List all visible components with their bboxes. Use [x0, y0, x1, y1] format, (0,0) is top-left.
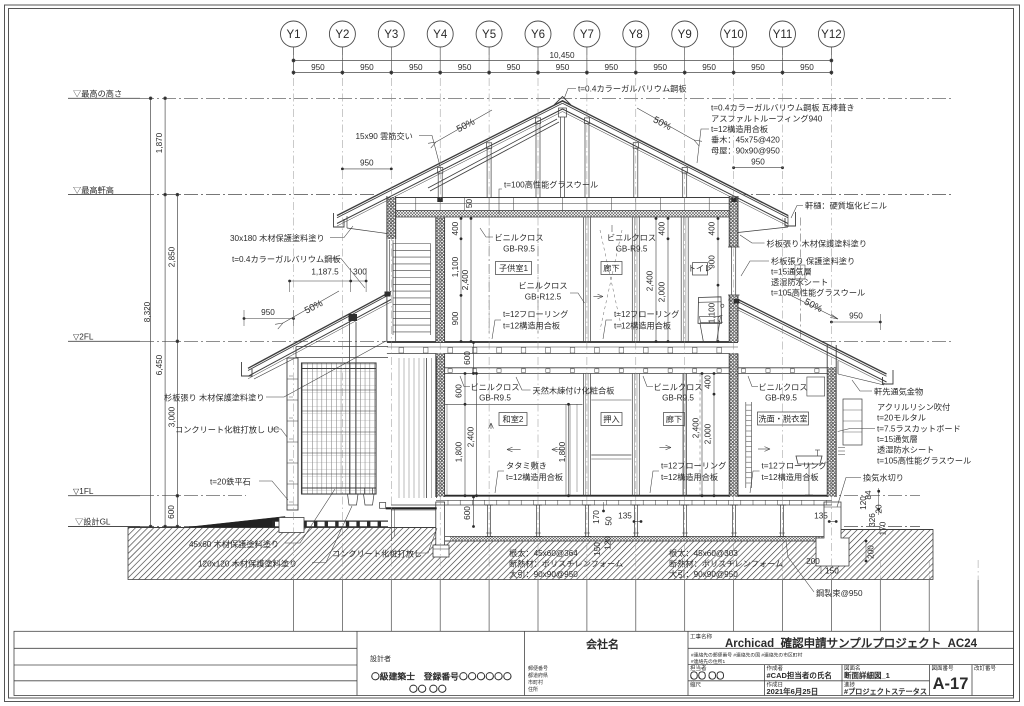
svg-text:t=12構造用合板: t=12構造用合板: [762, 472, 819, 482]
svg-text:45x60 木材保護塗料塗り: 45x60 木材保護塗料塗り: [189, 539, 279, 549]
svg-text:300: 300: [353, 268, 367, 277]
svg-text:950: 950: [849, 312, 863, 321]
svg-text:400: 400: [451, 221, 460, 235]
svg-text:900: 900: [708, 255, 717, 269]
svg-text:t=12構造用合板: t=12構造用合板: [661, 472, 718, 482]
svg-text:Y8: Y8: [629, 29, 643, 41]
svg-text:15x90 雲筋交い: 15x90 雲筋交い: [356, 131, 413, 141]
svg-text:600: 600: [167, 505, 176, 519]
svg-text:2021年6月25日: 2021年6月25日: [767, 686, 819, 696]
svg-text:GB-R9.5: GB-R9.5: [616, 245, 648, 254]
svg-text:Y6: Y6: [531, 29, 545, 41]
svg-text:950: 950: [604, 63, 618, 72]
svg-text:Y4: Y4: [433, 29, 448, 41]
svg-text:杉板張り 保護塗料塗り: 杉板張り 保護塗料塗り: [771, 256, 855, 266]
svg-text:大引：90x90@950: 大引：90x90@950: [509, 569, 578, 579]
svg-text:t=15通気層: t=15通気層: [877, 434, 918, 444]
svg-text:135: 135: [814, 512, 828, 521]
svg-text:#連絡先の住所1: #連絡先の住所1: [691, 658, 725, 665]
svg-text:A-17: A-17: [933, 675, 969, 693]
svg-text:杉板張り 木材保護塗料塗り: 杉板張り 木材保護塗料塗り: [164, 393, 265, 403]
svg-text:2,000: 2,000: [704, 423, 713, 444]
svg-text:子供室1: 子供室1: [499, 263, 529, 273]
svg-text:アクリルリシン吹付: アクリルリシン吹付: [877, 402, 950, 412]
svg-text:コンクリート化粧打放し UC: コンクリート化粧打放し UC: [175, 425, 279, 435]
svg-text:改訂番号: 改訂番号: [974, 664, 997, 672]
svg-text:t=12フローリング: t=12フローリング: [503, 309, 568, 319]
svg-text:#CAD担当者の氏名: #CAD担当者の氏名: [767, 670, 832, 680]
svg-text:工事名称: 工事名称: [690, 633, 713, 641]
svg-text:透湿防水シート: 透湿防水シート: [877, 445, 934, 455]
svg-text:120x120 木材保護塗料塗り: 120x120 木材保護塗料塗り: [198, 559, 297, 569]
svg-text:Y3: Y3: [384, 29, 398, 41]
svg-text:2,400: 2,400: [692, 417, 701, 438]
svg-text:洗面・脱衣室: 洗面・脱衣室: [758, 414, 807, 424]
svg-text:廊下: 廊下: [666, 414, 682, 424]
svg-text:▽設計GL: ▽設計GL: [75, 517, 111, 527]
svg-text:t=105高性能グラスウール: t=105高性能グラスウール: [771, 288, 865, 298]
svg-text:鋼製束@950: 鋼製束@950: [816, 588, 863, 598]
svg-text:ビニルクロス: ビニルクロス: [518, 282, 567, 291]
svg-text:1,870: 1,870: [155, 132, 164, 153]
svg-text:t=12構造用合板: t=12構造用合板: [503, 321, 560, 331]
svg-text:断面詳細図_1: 断面詳細図_1: [844, 670, 890, 680]
svg-text:120: 120: [859, 496, 868, 510]
svg-text:950: 950: [360, 63, 374, 72]
svg-text:廊下: 廊下: [603, 263, 619, 273]
svg-text:30x180 木材保護塗料塗り: 30x180 木材保護塗料塗り: [230, 233, 325, 243]
svg-text:GB-R9.5: GB-R9.5: [479, 394, 511, 403]
svg-text:900: 900: [451, 311, 460, 325]
svg-text:950: 950: [702, 63, 716, 72]
svg-text:t=7.5ラスカットボード: t=7.5ラスカットボード: [877, 424, 961, 433]
svg-text:2,400: 2,400: [467, 426, 476, 447]
svg-text:ビニルクロス: ビニルクロス: [494, 234, 543, 243]
svg-text:t=12フローリング: t=12フローリング: [614, 309, 679, 319]
svg-text:Y2: Y2: [335, 29, 349, 41]
svg-text:設計者: 設計者: [370, 654, 391, 663]
svg-text:950: 950: [458, 63, 472, 72]
svg-text:Y1: Y1: [286, 29, 300, 41]
svg-text:t=20モルタル: t=20モルタル: [877, 414, 926, 423]
svg-text:170: 170: [879, 521, 888, 535]
svg-text:縮尺: 縮尺: [690, 680, 702, 688]
svg-text:2,400: 2,400: [646, 270, 655, 291]
svg-text:950: 950: [800, 63, 814, 72]
svg-text:〇〇 〇〇: 〇〇 〇〇: [690, 671, 724, 681]
svg-text:2,000: 2,000: [658, 281, 667, 302]
svg-text:Y10: Y10: [723, 29, 743, 41]
svg-text:断熱材：ポリスチレンフォーム: 断熱材：ポリスチレンフォーム: [509, 559, 623, 569]
svg-text:1,800: 1,800: [558, 441, 567, 462]
svg-text:2,400: 2,400: [461, 269, 470, 290]
svg-text:2,850: 2,850: [168, 246, 177, 267]
svg-text:透湿防水シート: 透湿防水シート: [771, 277, 828, 287]
svg-text:t=12構造用合板: t=12構造用合板: [506, 472, 563, 482]
svg-text:天然木練付け化粧合板: 天然木練付け化粧合板: [533, 386, 615, 396]
svg-text:Y5: Y5: [482, 29, 496, 41]
svg-text:ビニルクロス: ビニルクロス: [653, 383, 702, 392]
svg-text:根太：45x60@364: 根太：45x60@364: [509, 548, 578, 558]
svg-text:Y12: Y12: [821, 29, 841, 41]
svg-text:950: 950: [311, 63, 325, 72]
svg-text:郵便番号: 郵便番号: [528, 665, 548, 672]
svg-text:t=12構造用合板: t=12構造用合板: [614, 321, 671, 331]
svg-text:#プロジェクトステータス: #プロジェクトステータス: [844, 687, 927, 696]
svg-text:▽最高軒高: ▽最高軒高: [73, 185, 114, 195]
svg-text:t=15通気層: t=15通気層: [771, 267, 812, 277]
svg-text:t=0.4カラーガルバリウム鋼板: t=0.4カラーガルバリウム鋼板: [578, 84, 687, 94]
svg-text:150: 150: [825, 567, 839, 576]
svg-text:アスファルトルーフィング940: アスファルトルーフィング940: [711, 114, 823, 124]
svg-text:▽最高の高さ: ▽最高の高さ: [73, 89, 122, 99]
svg-text:和室2: 和室2: [503, 414, 524, 424]
svg-text:50: 50: [605, 516, 614, 526]
svg-text:950: 950: [751, 157, 765, 166]
svg-text:8,320: 8,320: [143, 301, 152, 322]
svg-text:都道府県: 都道府県: [528, 672, 548, 679]
svg-text:200: 200: [867, 545, 876, 559]
svg-text:t=105高性能グラスウール: t=105高性能グラスウール: [877, 455, 971, 465]
svg-text:6,450: 6,450: [155, 354, 164, 375]
svg-text:軒樋：硬質塩化ビニル: 軒樋：硬質塩化ビニル: [805, 201, 887, 211]
svg-text:170: 170: [592, 510, 601, 524]
svg-text:t=0.4カラーガルバリウム鋼板 瓦棒葺き: t=0.4カラーガルバリウム鋼板 瓦棒葺き: [711, 103, 855, 113]
svg-text:図面番号: 図面番号: [932, 665, 955, 672]
svg-text:ビニルクロス: ビニルクロス: [470, 383, 519, 392]
svg-text:GB-R9.5: GB-R9.5: [765, 394, 797, 403]
svg-text:ビニルクロス: ビニルクロス: [758, 383, 807, 392]
svg-text:住所: 住所: [528, 686, 538, 693]
svg-text:杉板張り 木材保護塗料塗り: 杉板張り 木材保護塗料塗り: [767, 239, 868, 249]
svg-text:Y11: Y11: [773, 29, 793, 41]
svg-text:#連絡先の郵便番号 #連絡先の国 #連絡先の市区町村: #連絡先の郵便番号 #連絡先の国 #連絡先の市区町村: [691, 652, 803, 659]
svg-text:600: 600: [463, 351, 472, 365]
svg-text:t=100高性能グラスウール: t=100高性能グラスウール: [504, 180, 598, 190]
svg-text:120: 120: [604, 536, 613, 550]
svg-text:GB-R9.5: GB-R9.5: [662, 394, 694, 403]
svg-text:t=12フローリング: t=12フローリング: [762, 461, 827, 471]
svg-text:Y9: Y9: [678, 29, 692, 41]
svg-text:▽2FL: ▽2FL: [73, 333, 94, 342]
svg-text:換気水切り: 換気水切り: [863, 473, 904, 483]
svg-text:400: 400: [658, 221, 667, 235]
svg-text:t=20鉄平石: t=20鉄平石: [210, 477, 251, 487]
svg-text:コンクリート化粧打放し: コンクリート化粧打放し: [332, 549, 422, 559]
svg-text:t=0.4カラーガルバリウム鋼板: t=0.4カラーガルバリウム鋼板: [232, 254, 341, 264]
svg-text:断熱材：ポリスチレンフォーム: 断熱材：ポリスチレンフォーム: [669, 559, 783, 569]
svg-text:〇級建築士 登録番号〇〇〇〇〇〇: 〇級建築士 登録番号〇〇〇〇〇〇: [371, 671, 512, 682]
svg-text:326: 326: [868, 513, 877, 527]
svg-text:t=12フローリング: t=12フローリング: [661, 461, 726, 471]
svg-text:950: 950: [556, 63, 570, 72]
svg-text:950: 950: [409, 63, 423, 72]
svg-text:市町村: 市町村: [528, 679, 543, 686]
svg-text:3,000: 3,000: [168, 406, 177, 427]
svg-text:200: 200: [806, 557, 820, 566]
svg-text:600: 600: [463, 506, 472, 520]
svg-text:950: 950: [751, 63, 765, 72]
svg-text:Y7: Y7: [580, 29, 594, 41]
svg-text:▽1FL: ▽1FL: [73, 487, 94, 496]
svg-text:母屋：90x90@950: 母屋：90x90@950: [711, 146, 780, 155]
svg-text:ビニルクロス: ビニルクロス: [607, 234, 656, 243]
svg-text:押入: 押入: [603, 414, 619, 424]
svg-text:t=12構造用合板: t=12構造用合板: [711, 124, 768, 134]
svg-text:〇〇 〇〇: 〇〇 〇〇: [409, 683, 447, 694]
svg-text:Archicad_確認申請サンプルプロジェクト_AC24: Archicad_確認申請サンプルプロジェクト_AC24: [725, 636, 978, 650]
svg-text:垂木：45x75@420: 垂木：45x75@420: [711, 135, 780, 145]
svg-text:400: 400: [708, 221, 717, 235]
svg-text:50: 50: [465, 199, 474, 209]
svg-text:1,800: 1,800: [455, 441, 464, 462]
svg-text:10,450: 10,450: [549, 51, 574, 60]
svg-text:150: 150: [593, 542, 602, 556]
svg-text:135: 135: [618, 512, 632, 521]
svg-text:GB-R9.5: GB-R9.5: [503, 245, 535, 254]
svg-text:タタミ敷き: タタミ敷き: [506, 461, 547, 471]
svg-text:根太：45x60@303: 根太：45x60@303: [669, 548, 738, 558]
svg-text:950: 950: [507, 63, 521, 72]
svg-text:950: 950: [360, 159, 374, 168]
svg-text:会社名: 会社名: [586, 637, 619, 651]
svg-text:GB-R12.5: GB-R12.5: [525, 293, 562, 302]
svg-text:大引：90x90@950: 大引：90x90@950: [669, 569, 738, 579]
svg-text:1,100: 1,100: [708, 302, 717, 323]
svg-text:400: 400: [704, 375, 713, 389]
svg-text:軒先通気金物: 軒先通気金物: [874, 387, 923, 397]
svg-text:600: 600: [455, 384, 464, 398]
svg-text:1,187.5: 1,187.5: [311, 268, 339, 277]
svg-text:950: 950: [261, 308, 275, 317]
svg-text:950: 950: [653, 63, 667, 72]
svg-text:1,100: 1,100: [451, 256, 460, 277]
